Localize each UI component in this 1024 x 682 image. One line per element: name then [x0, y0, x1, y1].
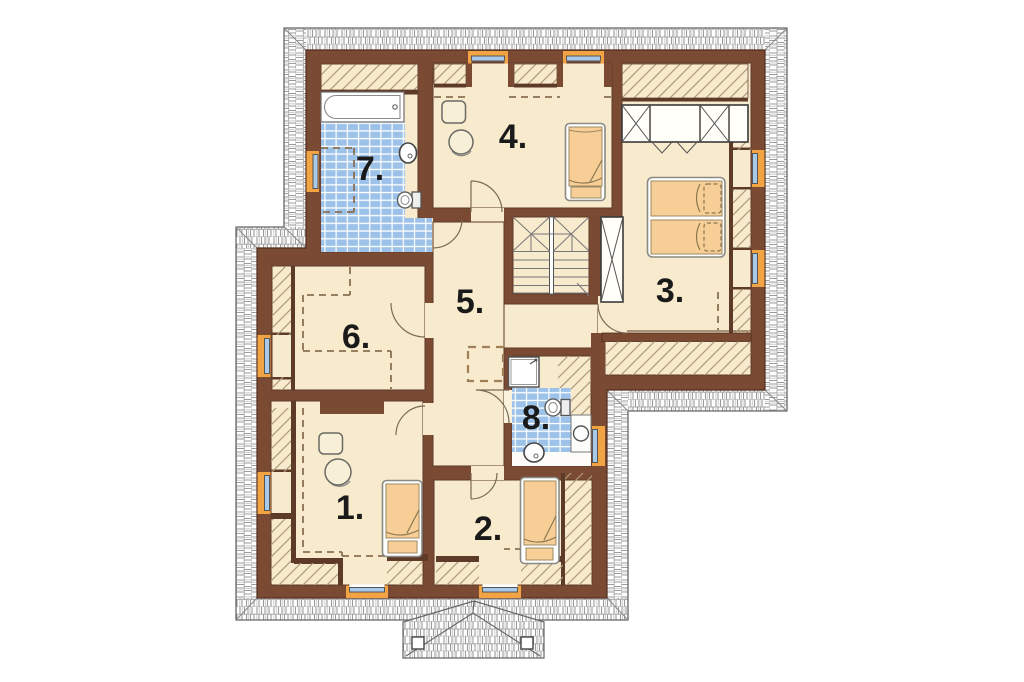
svg-text:3.: 3. — [656, 272, 684, 310]
svg-text:2.: 2. — [474, 510, 502, 548]
svg-text:4.: 4. — [499, 118, 527, 156]
svg-text:6.: 6. — [342, 318, 370, 356]
svg-text:1.: 1. — [336, 489, 364, 527]
svg-text:8.: 8. — [522, 399, 550, 437]
svg-text:5.: 5. — [456, 283, 484, 321]
svg-text:7.: 7. — [356, 150, 384, 188]
